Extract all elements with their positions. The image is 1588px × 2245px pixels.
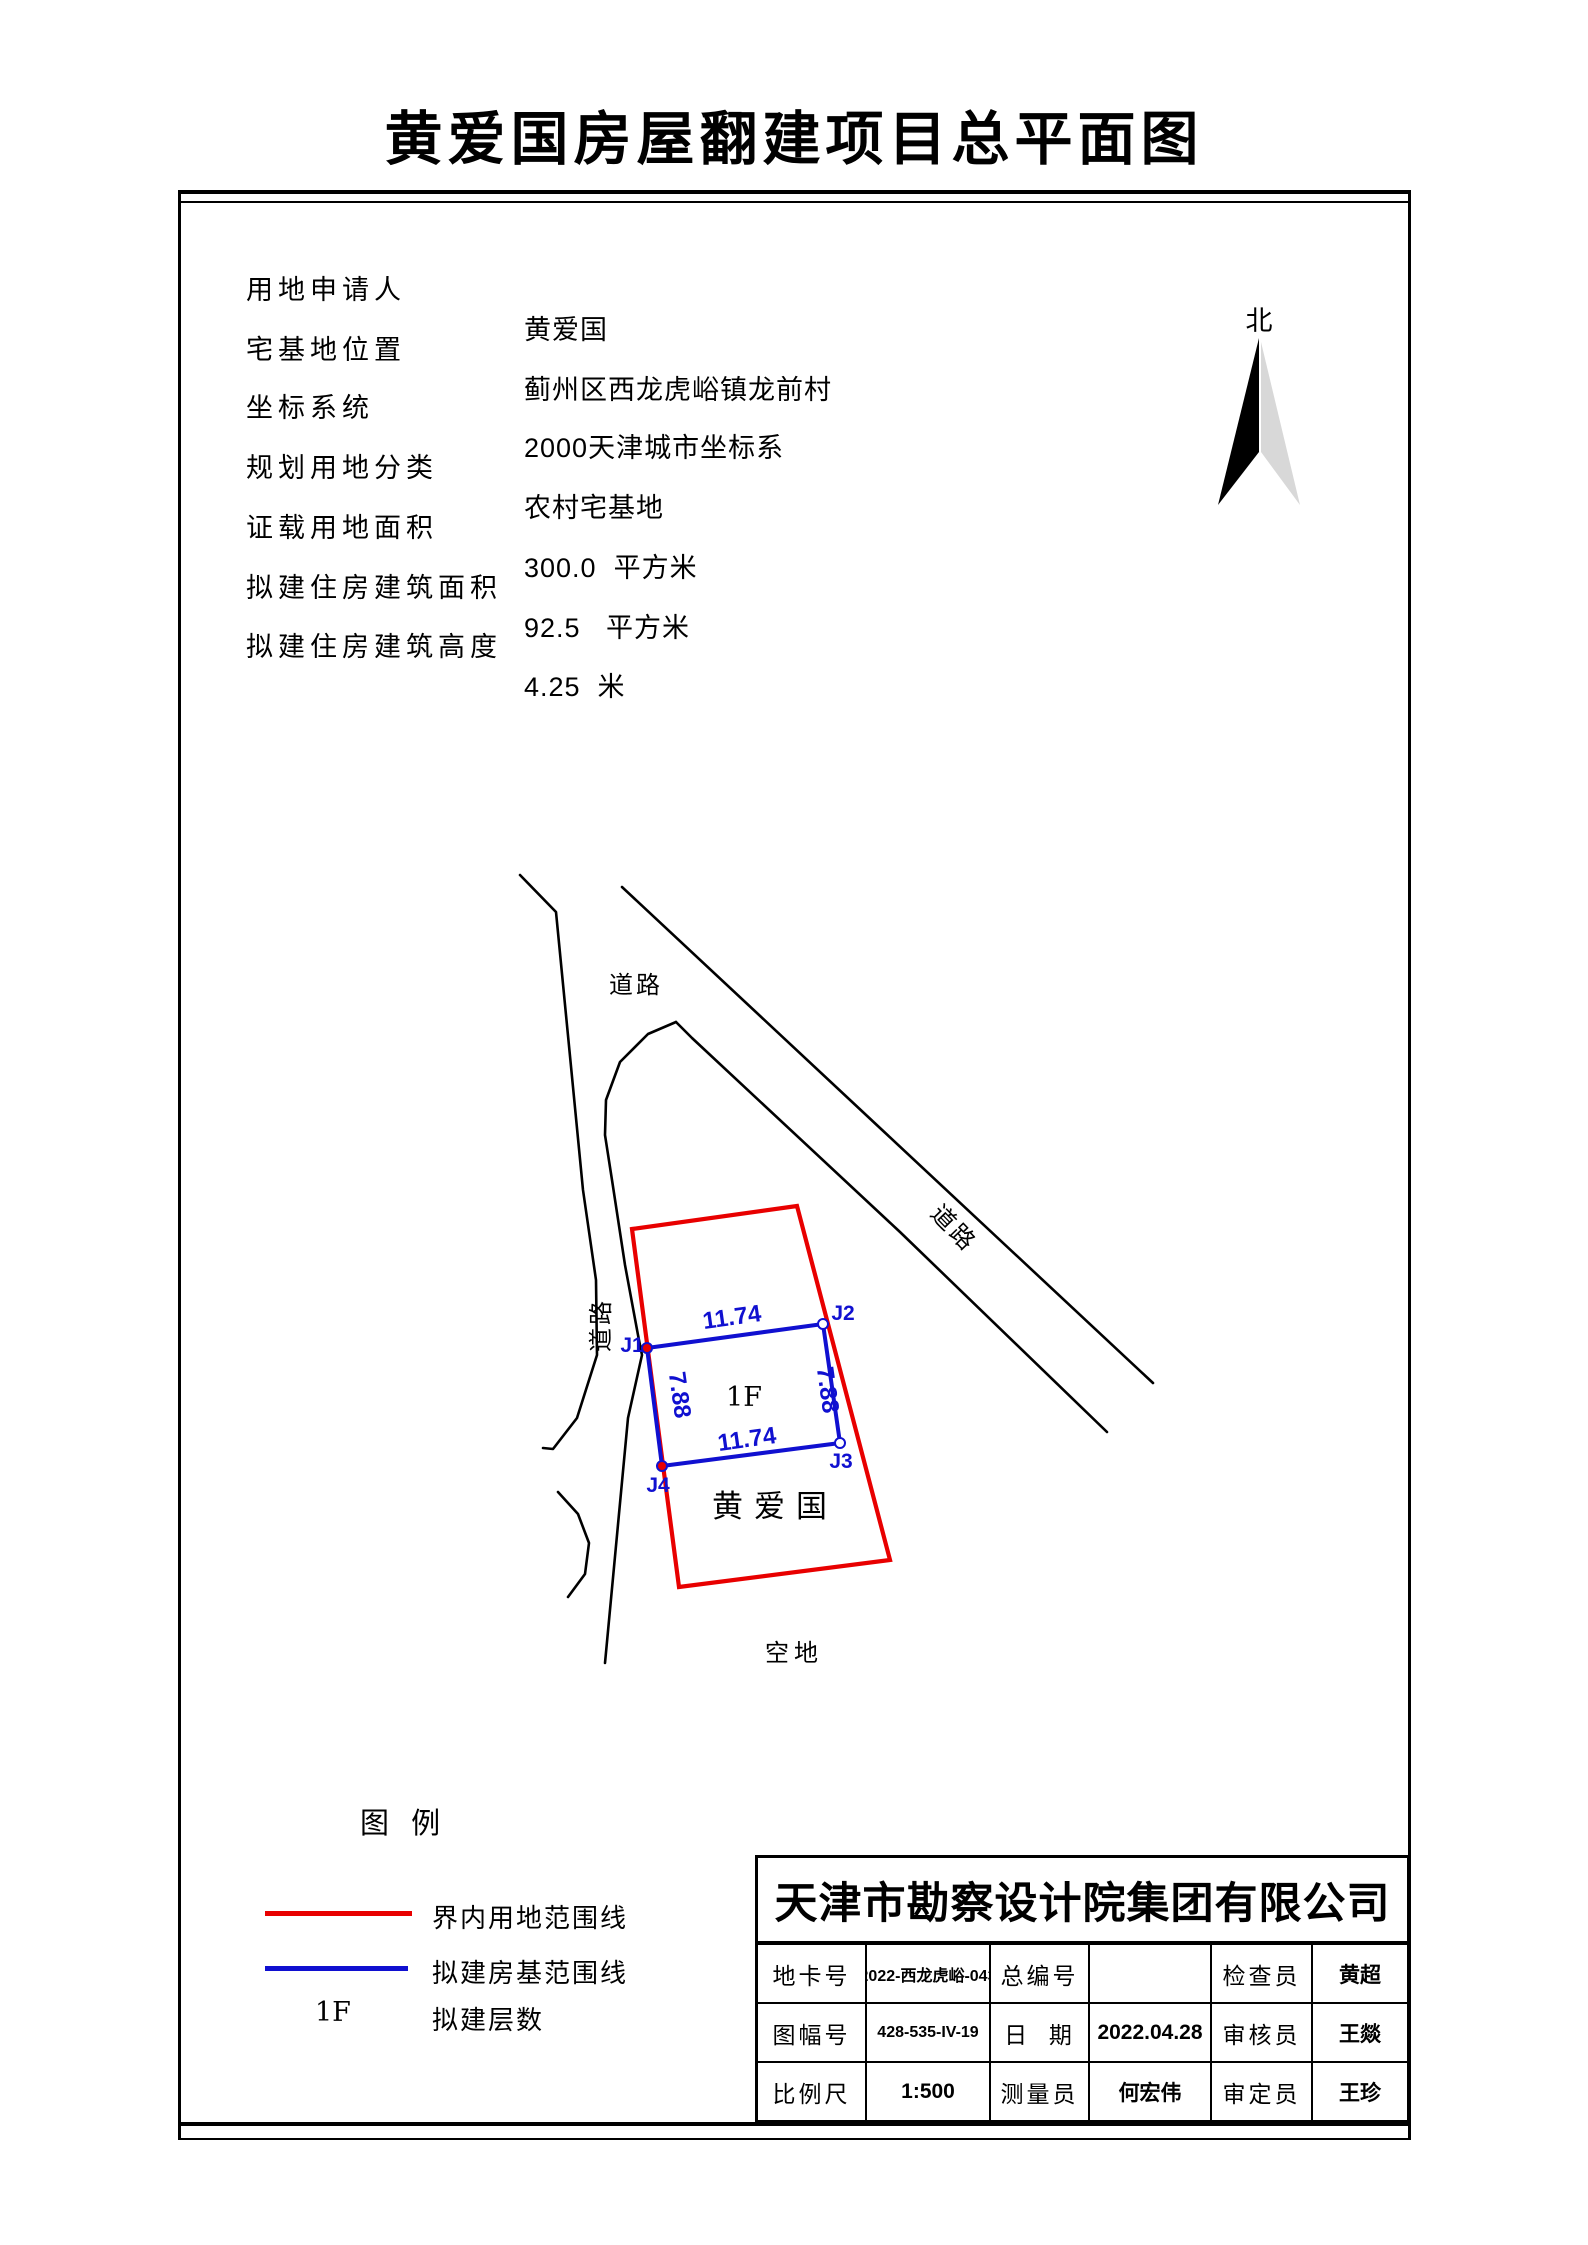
- cell-value: 2022-西龙虎峪-043: [865, 1962, 989, 1986]
- title-block: 天津市勘察设计院集团有限公司 地卡号 2022-西龙虎峪-043 总编号 检查员…: [755, 1855, 1410, 2123]
- cell-label: 日 期: [1004, 2016, 1075, 2050]
- north-arrow-light-half: [1261, 342, 1300, 505]
- cell-value: 428-535-IV-19: [877, 2024, 978, 2042]
- dimension-right: 7.88: [811, 1365, 844, 1415]
- road-label-diagonal: 道路: [925, 1200, 982, 1258]
- north-label: 北: [1246, 306, 1273, 336]
- cell-value: 王燚: [1339, 2018, 1381, 2048]
- vertex-label-j2: J2: [831, 1302, 854, 1325]
- cell-label: 比例尺: [773, 2075, 851, 2109]
- vertex-j4: [657, 1461, 667, 1471]
- cell-label: 审定员: [1223, 2075, 1301, 2109]
- dimension-left: 7.88: [663, 1370, 696, 1420]
- road-label-left: 道路: [588, 1298, 615, 1352]
- vertex-label-j4: J4: [646, 1474, 670, 1497]
- north-arrow-dark-half: [1218, 338, 1259, 505]
- title-block-grid: 地卡号 2022-西龙虎峪-043 总编号 检查员 黄超 图幅号 428-535…: [758, 1943, 1407, 2120]
- cell-value: 何宏伟: [1119, 2077, 1182, 2107]
- road-diagonal-lower-edge: [676, 1022, 1107, 1432]
- vertex-label-j3: J3: [829, 1450, 852, 1473]
- vertex-label-j1: J1: [620, 1334, 644, 1357]
- legend-blue-line-swatch: [265, 1966, 408, 1971]
- vertex-j3: [835, 1438, 845, 1448]
- cell-label: 图幅号: [773, 2016, 851, 2050]
- company-name: 天津市勘察设计院集团有限公司: [758, 1858, 1407, 1943]
- cell-label: 地卡号: [773, 1957, 851, 1991]
- legend-item-building: 拟建房基范围线: [432, 1953, 628, 1990]
- vertex-j2: [818, 1319, 828, 1329]
- road-left-edge: [520, 875, 597, 1449]
- road-bottom-curve: [558, 1492, 589, 1597]
- legend-floors-symbol: 1F: [315, 1997, 351, 2028]
- legend-red-line-swatch: [265, 1911, 412, 1916]
- cell-label: 检查员: [1223, 1957, 1301, 1991]
- cell-value: 王珍: [1339, 2077, 1381, 2107]
- legend-title: 图 例: [360, 1800, 442, 1842]
- cell-value: 黄超: [1339, 1959, 1381, 1989]
- road-label-top: 道路: [609, 972, 663, 999]
- legend-item-floors: 拟建层数: [432, 2000, 544, 2037]
- cell-value: 2022.04.28: [1097, 2021, 1202, 2045]
- cell-label: 审核员: [1223, 2016, 1301, 2050]
- sheet: 黄爱国房屋翻建项目总平面图 用地申请人 黄爱国 宅基地位置 蓟州区西龙虎峪镇龙前…: [0, 0, 1588, 2245]
- owner-label: 黄爱国: [712, 1489, 838, 1524]
- cell-label: 总编号: [1001, 1957, 1079, 1991]
- dimension-top: 11.74: [701, 1300, 764, 1335]
- legend-item-boundary: 界内用地范围线: [432, 1898, 628, 1935]
- cell-value: 1:500: [901, 2080, 955, 2104]
- north-arrow: 北: [1218, 306, 1300, 505]
- vacant-land-label: 空地: [765, 1640, 823, 1667]
- cell-label: 测量员: [1001, 2075, 1079, 2109]
- floors-label: 1F: [726, 1382, 762, 1413]
